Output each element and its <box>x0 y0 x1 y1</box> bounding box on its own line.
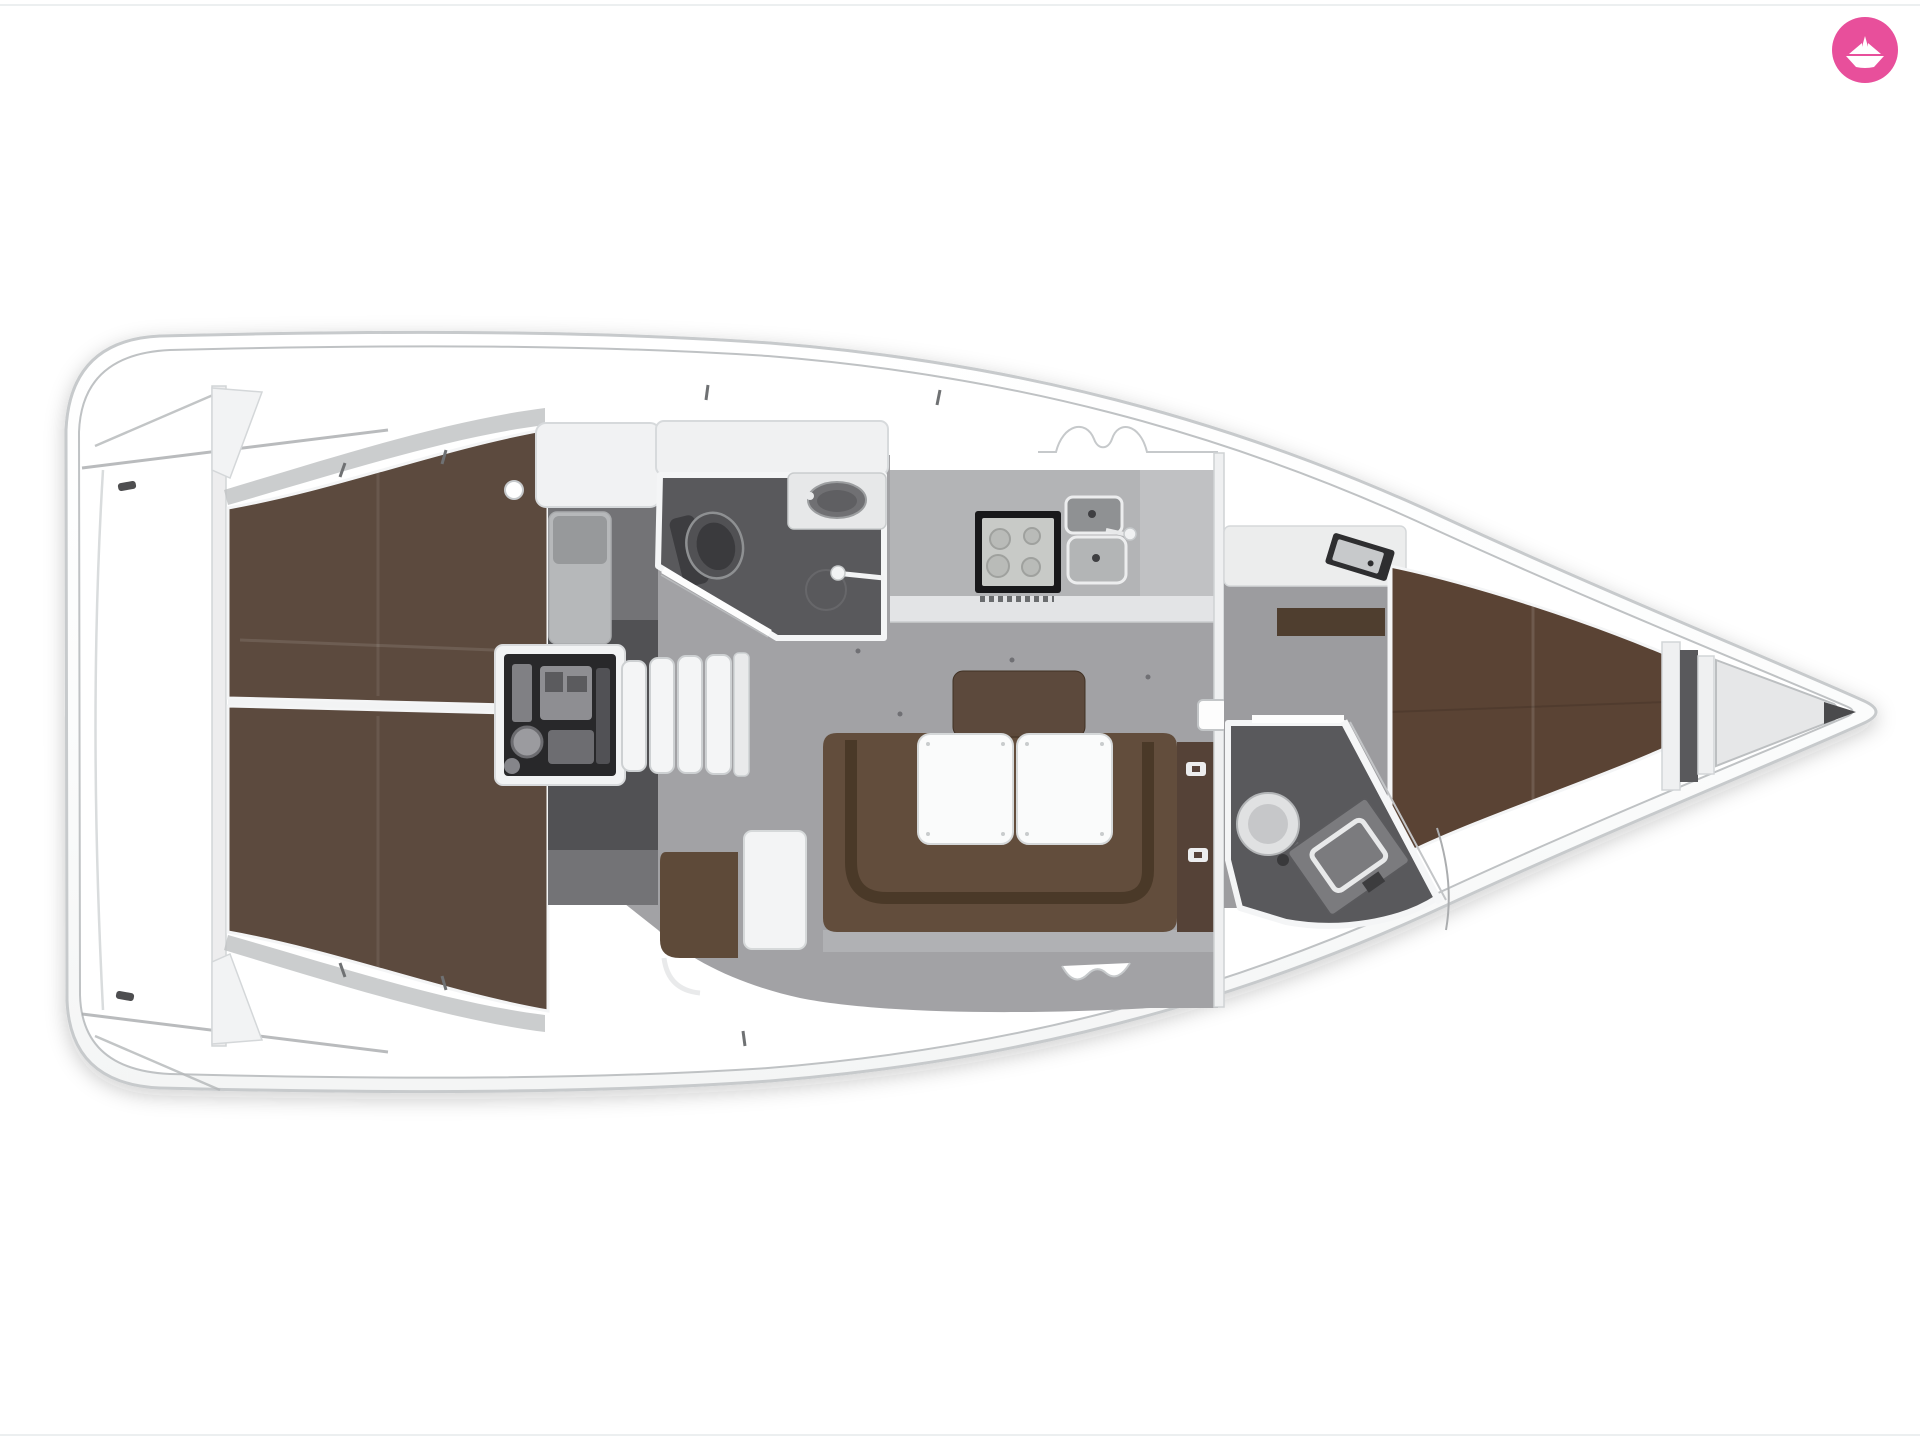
companionway-stairs <box>622 653 749 776</box>
sink-drain <box>1088 510 1096 518</box>
salon-table-leaf <box>918 734 1013 844</box>
floor-plan-page <box>0 0 1920 1440</box>
galley-wall-band <box>890 450 1218 472</box>
settee-backrest <box>953 671 1085 737</box>
engine-compartment <box>495 645 625 785</box>
engine-part <box>512 664 532 722</box>
stair-tread <box>706 655 731 774</box>
engine-part <box>596 668 610 764</box>
floor-screw <box>1010 658 1015 663</box>
cabin-vanity-top <box>553 516 607 564</box>
burner <box>1024 528 1040 544</box>
stair-landing <box>734 653 749 776</box>
locker-latch <box>1188 848 1208 862</box>
bed-headboard <box>1277 608 1385 636</box>
paper-boat-logo <box>1832 17 1898 83</box>
engine-part <box>545 672 563 692</box>
nav-seat <box>660 852 738 958</box>
mast-foot <box>1198 700 1228 730</box>
stern-bulkhead <box>212 386 226 1046</box>
stair-tread <box>678 656 702 773</box>
head-cabinet <box>656 421 888 475</box>
galley-counter-right <box>1140 470 1218 598</box>
engine-part <box>567 676 587 692</box>
sink-drain <box>1092 554 1100 562</box>
salon-table-leaf <box>1017 734 1112 844</box>
floor-screw <box>1146 675 1151 680</box>
floor-screw <box>856 649 861 654</box>
bow-chain-well <box>1680 650 1698 782</box>
burner <box>1022 558 1040 576</box>
galley <box>890 427 1218 622</box>
engine-pulley <box>512 727 542 757</box>
galley-faucet <box>1124 528 1136 540</box>
stanchion-tick <box>706 385 708 400</box>
burner <box>990 529 1010 549</box>
toilet-seat <box>1248 804 1288 844</box>
burner <box>987 555 1009 577</box>
faucet-dot <box>806 492 814 500</box>
cabin-door-knob <box>505 481 523 499</box>
shower-head <box>831 566 845 580</box>
nav-table <box>744 831 806 949</box>
engine-part <box>548 730 594 764</box>
settee-floor-shadow <box>823 930 1217 952</box>
stair-tread <box>622 661 646 771</box>
stair-tread <box>650 658 674 773</box>
sink-basin-inner <box>817 490 857 512</box>
floor-screw <box>898 712 903 717</box>
stanchion-tick <box>743 1031 745 1046</box>
toilet-pump <box>1277 854 1289 866</box>
bow-bulkhead <box>1662 642 1680 790</box>
engine-pulley <box>504 758 520 774</box>
bow-bulkhead <box>1698 656 1714 774</box>
wet-locker-cabinet <box>536 423 660 507</box>
locker-latch <box>1186 762 1206 776</box>
yacht-floor-plan <box>0 0 1920 1440</box>
